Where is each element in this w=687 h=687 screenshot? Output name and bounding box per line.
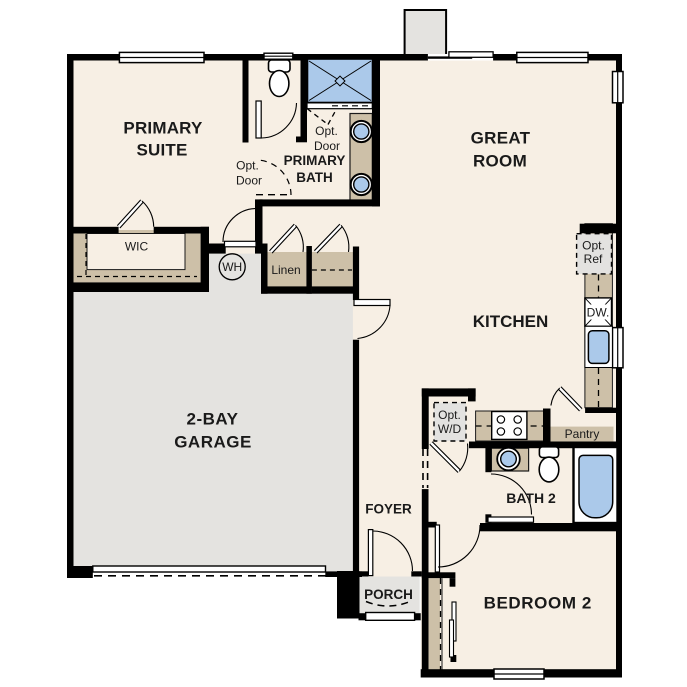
svg-text:W/D: W/D bbox=[438, 422, 462, 436]
svg-text:Ref: Ref bbox=[584, 252, 603, 266]
svg-text:GREAT: GREAT bbox=[471, 129, 531, 148]
svg-text:PRIMARY: PRIMARY bbox=[123, 119, 203, 138]
svg-text:ROOM: ROOM bbox=[473, 152, 527, 171]
svg-text:DW.: DW. bbox=[587, 306, 610, 320]
svg-text:PRIMARY: PRIMARY bbox=[284, 153, 346, 168]
svg-text:BEDROOM 2: BEDROOM 2 bbox=[484, 594, 592, 613]
svg-text:Opt.: Opt. bbox=[315, 124, 338, 138]
svg-text:Linen: Linen bbox=[271, 263, 300, 277]
svg-text:WH: WH bbox=[222, 260, 242, 274]
svg-text:KITCHEN: KITCHEN bbox=[473, 312, 549, 331]
svg-text:Pantry: Pantry bbox=[565, 427, 600, 441]
svg-text:Door: Door bbox=[236, 174, 262, 188]
svg-text:2-BAY: 2-BAY bbox=[187, 410, 239, 429]
svg-text:Opt.: Opt. bbox=[582, 239, 605, 253]
svg-text:Opt.: Opt. bbox=[438, 408, 461, 422]
svg-text:WIC: WIC bbox=[125, 240, 149, 254]
svg-text:BATH 2: BATH 2 bbox=[506, 490, 556, 506]
svg-text:BATH: BATH bbox=[296, 170, 333, 185]
svg-text:SUITE: SUITE bbox=[136, 141, 187, 160]
svg-text:Door: Door bbox=[314, 139, 340, 153]
svg-text:PORCH: PORCH bbox=[364, 587, 413, 602]
svg-text:FOYER: FOYER bbox=[365, 502, 412, 517]
svg-text:Opt.: Opt. bbox=[236, 159, 259, 173]
svg-text:GARAGE: GARAGE bbox=[174, 433, 252, 452]
